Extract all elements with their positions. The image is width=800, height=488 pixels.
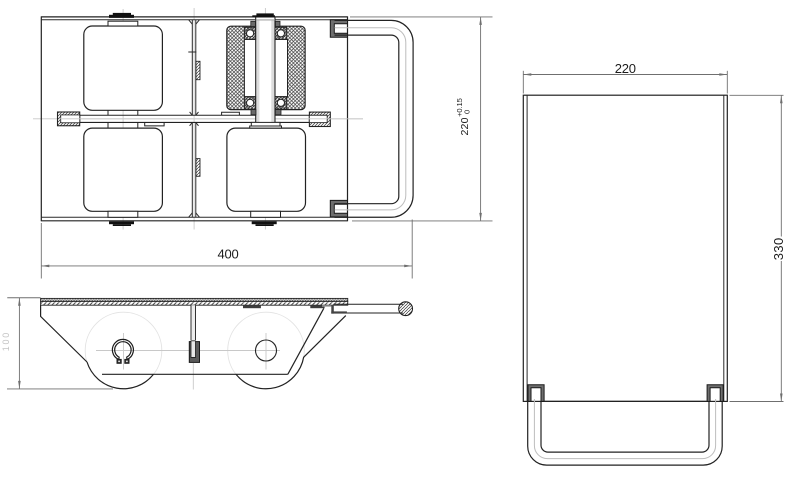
svg-text:0: 0: [463, 110, 472, 114]
svg-text:220: 220: [615, 61, 636, 76]
svg-text:400: 400: [217, 246, 238, 261]
svg-text:220: 220: [459, 117, 471, 135]
svg-text:330: 330: [771, 237, 786, 260]
svg-text:100: 100: [1, 331, 11, 351]
